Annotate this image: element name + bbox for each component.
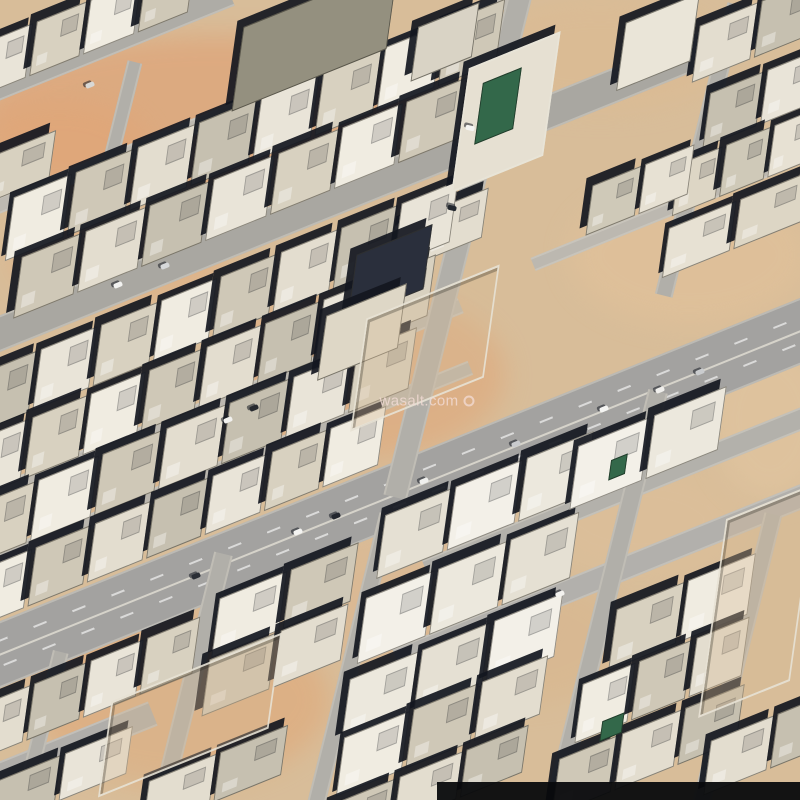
villa-building [770,688,800,768]
watermark-text: wasalt.com [379,393,458,410]
satellite-map[interactable]: wasalt.com [0,0,800,800]
watermark: wasalt.com [379,393,474,410]
watermark-pin-icon [464,396,475,407]
villa-building [760,48,800,125]
bottom-overlay-bar [437,782,800,800]
villa-building [754,0,800,58]
